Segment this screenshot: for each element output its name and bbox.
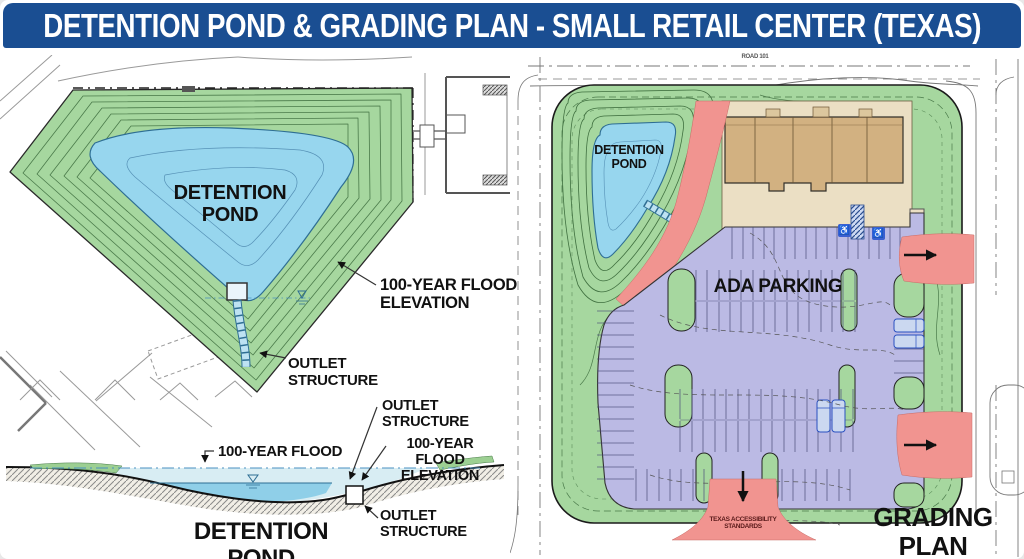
section-flood-label: 100-YEAR FLOOD [218, 444, 342, 461]
title-bar: DETENTION POND & GRADING PLAN - SMALL RE… [3, 3, 1021, 48]
sheet-title: DETENTION POND & GRADING PLAN - SMALL RE… [43, 7, 981, 45]
cross-section-caption: DETENTION POND [168, 519, 354, 559]
outlet-structure-label: OUTLET STRUCTURE [288, 356, 383, 390]
neighbor-building-outline [446, 77, 510, 193]
ada-parking-label: ADA PARKING [708, 276, 848, 297]
section-flood-elevation-label: 100-YEAR FLOOD ELEVATION [384, 436, 496, 485]
storm-pipe-stub [413, 125, 446, 147]
grading-plan-caption: GRADING PLAN [843, 503, 1023, 559]
section-outlet-label-bottom: OUTLET STRUCTURE [380, 508, 475, 540]
pond-plan-pond-label: DETENTION POND [155, 182, 305, 227]
ada-access-aisle-hatch [851, 205, 864, 239]
building-group [722, 101, 924, 229]
retail-building [725, 117, 903, 191]
grading-pond-label: DETENTION POND [578, 143, 680, 171]
outlet-structure-box-section [346, 486, 363, 504]
section-outlet-label-top: OUTLET STRUCTURE [382, 398, 477, 430]
survey-mark [182, 86, 195, 92]
accessibility-standards-label: TEXAS ACCESSIBILITY STANDARDS [697, 516, 789, 531]
outlet-structure-box [227, 283, 247, 300]
flood-elevation-label: 100-YEAR FLOOD ELEVATION [380, 276, 520, 313]
road-name-label: ROAD 101 [718, 54, 792, 61]
grading-plan-panel [510, 55, 1024, 559]
wheelchair-icon: ♿ [872, 227, 885, 240]
driveway-east-north [899, 234, 974, 285]
detention-pond-grading-plan-sheet: DETENTION POND & GRADING PLAN - SMALL RE… [0, 0, 1024, 559]
wheelchair-icon: ♿ [838, 224, 851, 237]
